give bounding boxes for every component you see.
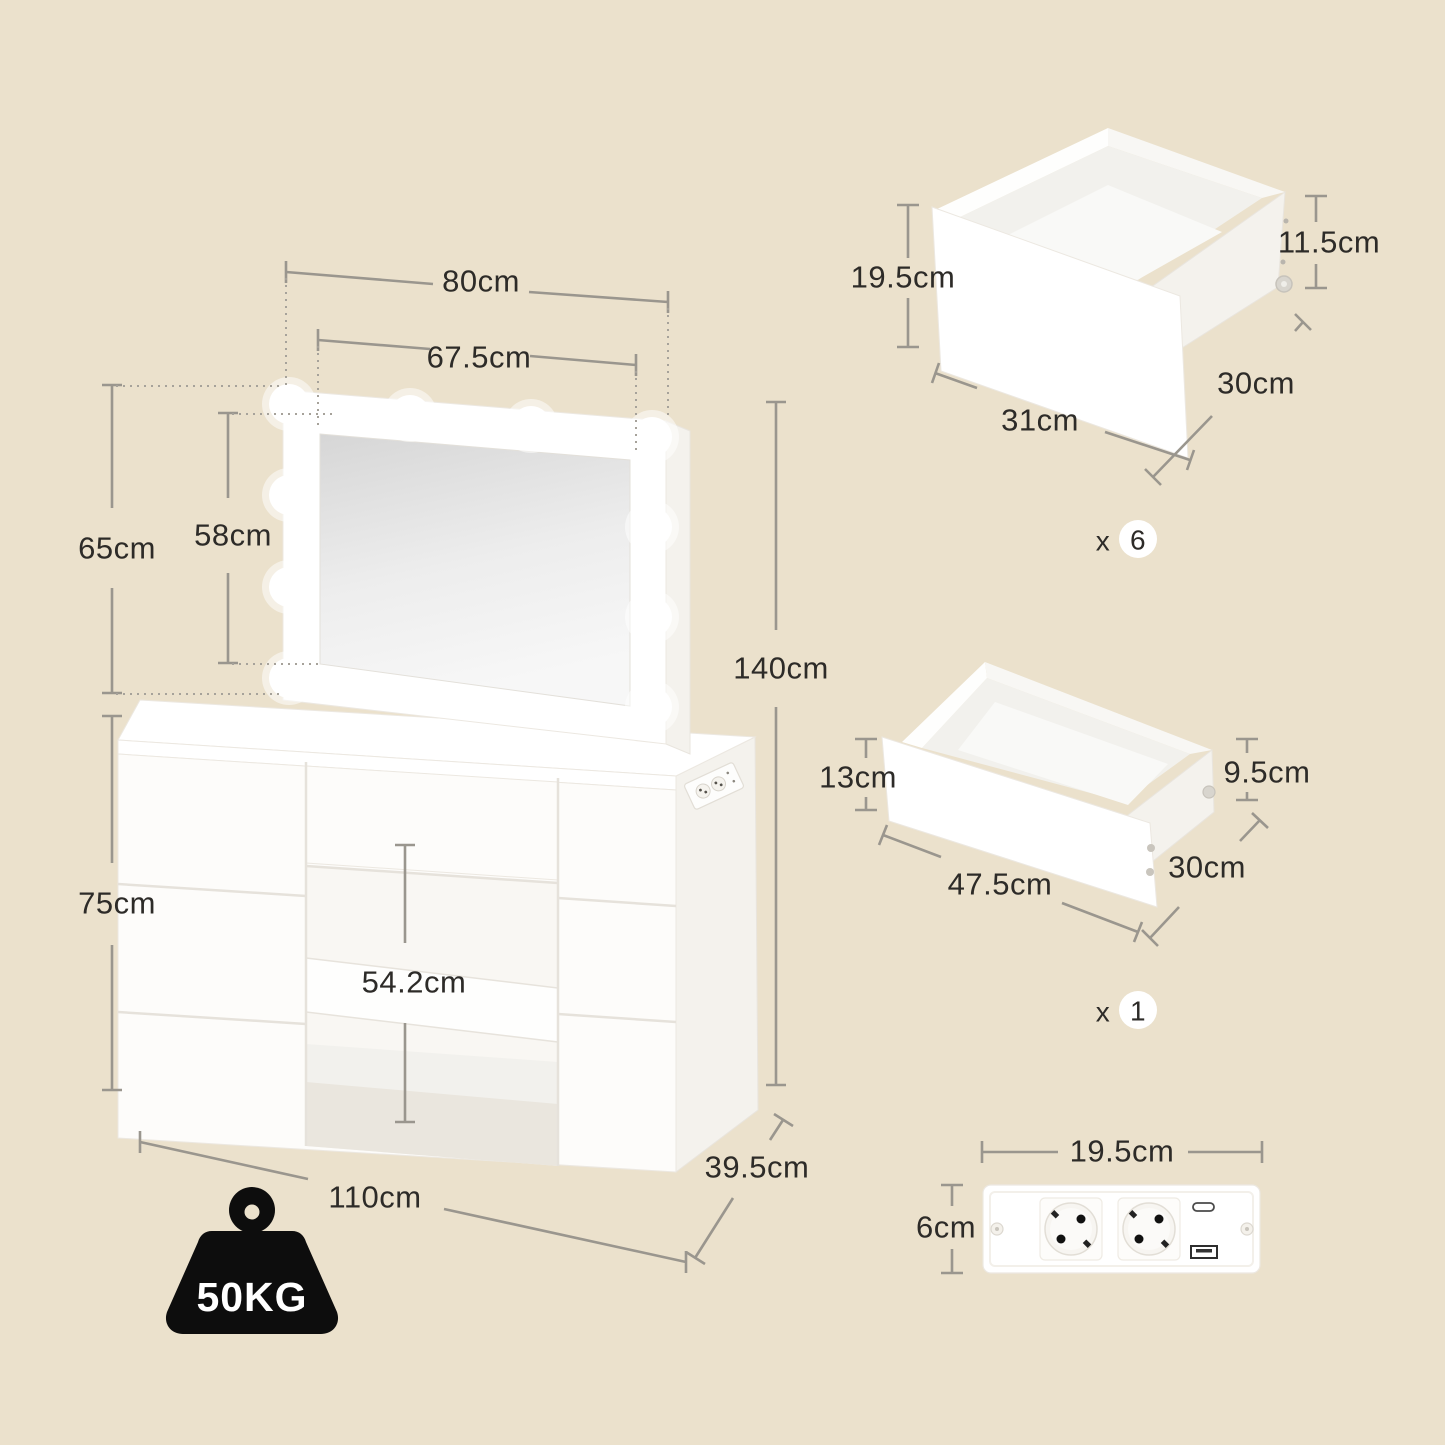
small-drawer-quantity: x 6 bbox=[1096, 520, 1157, 558]
light-bulb-icon bbox=[262, 651, 316, 705]
dim-table-width-label: 110cm bbox=[328, 1180, 421, 1215]
light-bulb-icon bbox=[504, 399, 558, 453]
light-bulb-icon bbox=[262, 560, 316, 614]
max-load-badge: 50KG bbox=[166, 1187, 338, 1334]
dim-table-depth-label: 39.5cm bbox=[705, 1150, 810, 1185]
dim-small-drawer-side-height: 11.5cm bbox=[1278, 196, 1380, 288]
vanity-table bbox=[118, 700, 758, 1172]
dim-total-height-label: 140cm bbox=[733, 651, 829, 686]
drawer-front bbox=[306, 766, 558, 880]
mirror-glass bbox=[320, 434, 630, 706]
dim-flat-drawer-side-height-label: 9.5cm bbox=[1224, 755, 1311, 790]
dim-small-drawer-depth-label: 30cm bbox=[1217, 366, 1295, 401]
dim-power-strip-width: 19.5cm bbox=[982, 1134, 1262, 1169]
small-drawer-figure: 19.5cm 11.5cm 31cm 30cm x 6 bbox=[851, 128, 1381, 558]
flat-drawer-figure: 13cm 9.5cm 47.5cm 30cm x 1 bbox=[819, 662, 1310, 1029]
drawer-roller bbox=[1203, 786, 1215, 798]
dim-small-drawer-side-height-label: 11.5cm bbox=[1278, 225, 1380, 260]
dim-power-strip-height: 6cm bbox=[916, 1185, 976, 1273]
dim-mirror-outer-height-label: 65cm bbox=[78, 531, 156, 566]
diagram-canvas: 80cm 67.5cm 65cm 58cm bbox=[0, 0, 1445, 1445]
power-strip bbox=[983, 1185, 1260, 1273]
dim-flat-drawer-front-height-label: 13cm bbox=[819, 760, 897, 795]
dim-mirror-inner-width-label: 67.5cm bbox=[427, 340, 532, 375]
eu-socket-icon bbox=[1040, 1198, 1102, 1260]
eu-socket-icon bbox=[1118, 1198, 1180, 1260]
dim-small-drawer-front-height-label: 19.5cm bbox=[851, 260, 956, 295]
dim-power-strip-width-label: 19.5cm bbox=[1070, 1134, 1175, 1169]
light-bulb-icon bbox=[625, 590, 679, 644]
quantity-value: 1 bbox=[1130, 996, 1146, 1027]
max-load-label: 50KG bbox=[196, 1274, 307, 1320]
vanity-mirror bbox=[262, 377, 690, 754]
dim-mirror-outer-width-label: 80cm bbox=[442, 264, 520, 299]
usb-a-port-icon bbox=[1191, 1246, 1217, 1258]
usb-c-port-icon bbox=[1193, 1203, 1214, 1211]
light-bulb-icon bbox=[625, 410, 679, 464]
power-strip-figure: 19.5cm 6cm bbox=[916, 1134, 1262, 1274]
quantity-prefix: x bbox=[1096, 997, 1111, 1028]
dim-flat-drawer-side-height: 9.5cm bbox=[1224, 739, 1311, 800]
product-dimension-diagram: 80cm 67.5cm 65cm 58cm bbox=[0, 0, 1445, 1445]
dim-flat-drawer-front-width-label: 47.5cm bbox=[948, 867, 1053, 902]
quantity-value: 6 bbox=[1130, 525, 1146, 556]
light-bulb-icon bbox=[625, 500, 679, 554]
light-bulb-icon bbox=[383, 388, 437, 442]
vanity-figure: 80cm 67.5cm 65cm 58cm bbox=[78, 261, 829, 1334]
light-bulb-icon bbox=[262, 468, 316, 522]
dim-table-height-label: 75cm bbox=[78, 886, 156, 921]
dim-small-drawer-front-width-label: 31cm bbox=[1001, 403, 1079, 438]
dim-knee-clearance-label: 54.2cm bbox=[362, 965, 467, 1000]
quantity-prefix: x bbox=[1096, 526, 1111, 557]
flat-drawer-quantity: x 1 bbox=[1096, 991, 1157, 1029]
dim-power-strip-height-label: 6cm bbox=[916, 1210, 976, 1245]
light-bulb-icon bbox=[625, 680, 679, 734]
small-drawer bbox=[932, 128, 1292, 458]
dim-flat-drawer-depth-label: 30cm bbox=[1168, 850, 1246, 885]
table-side-panel bbox=[676, 737, 758, 1172]
dim-mirror-inner-height-label: 58cm bbox=[194, 518, 272, 553]
